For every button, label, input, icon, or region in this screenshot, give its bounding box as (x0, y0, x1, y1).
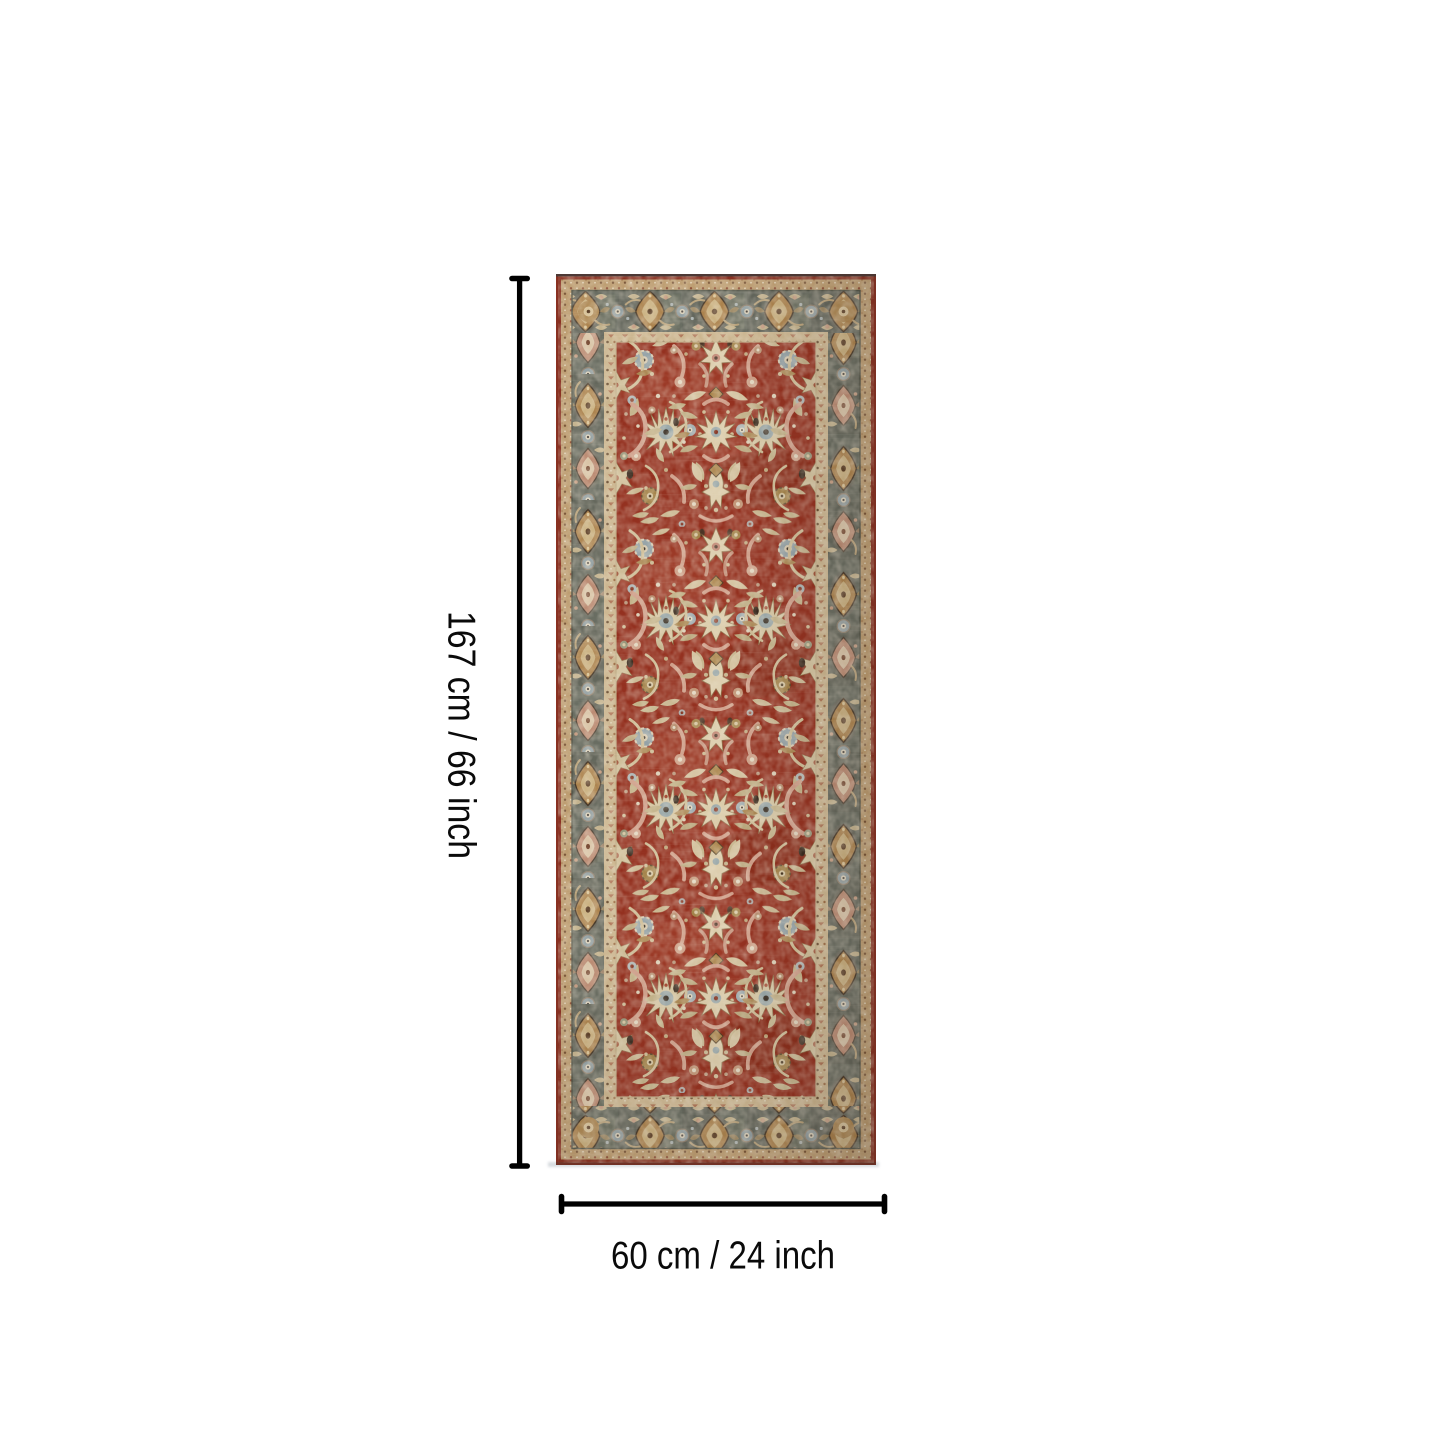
svg-text:167 cm / 66 inch: 167 cm / 66 inch (440, 611, 483, 859)
svg-text:60 cm / 24 inch: 60 cm / 24 inch (611, 1235, 835, 1278)
